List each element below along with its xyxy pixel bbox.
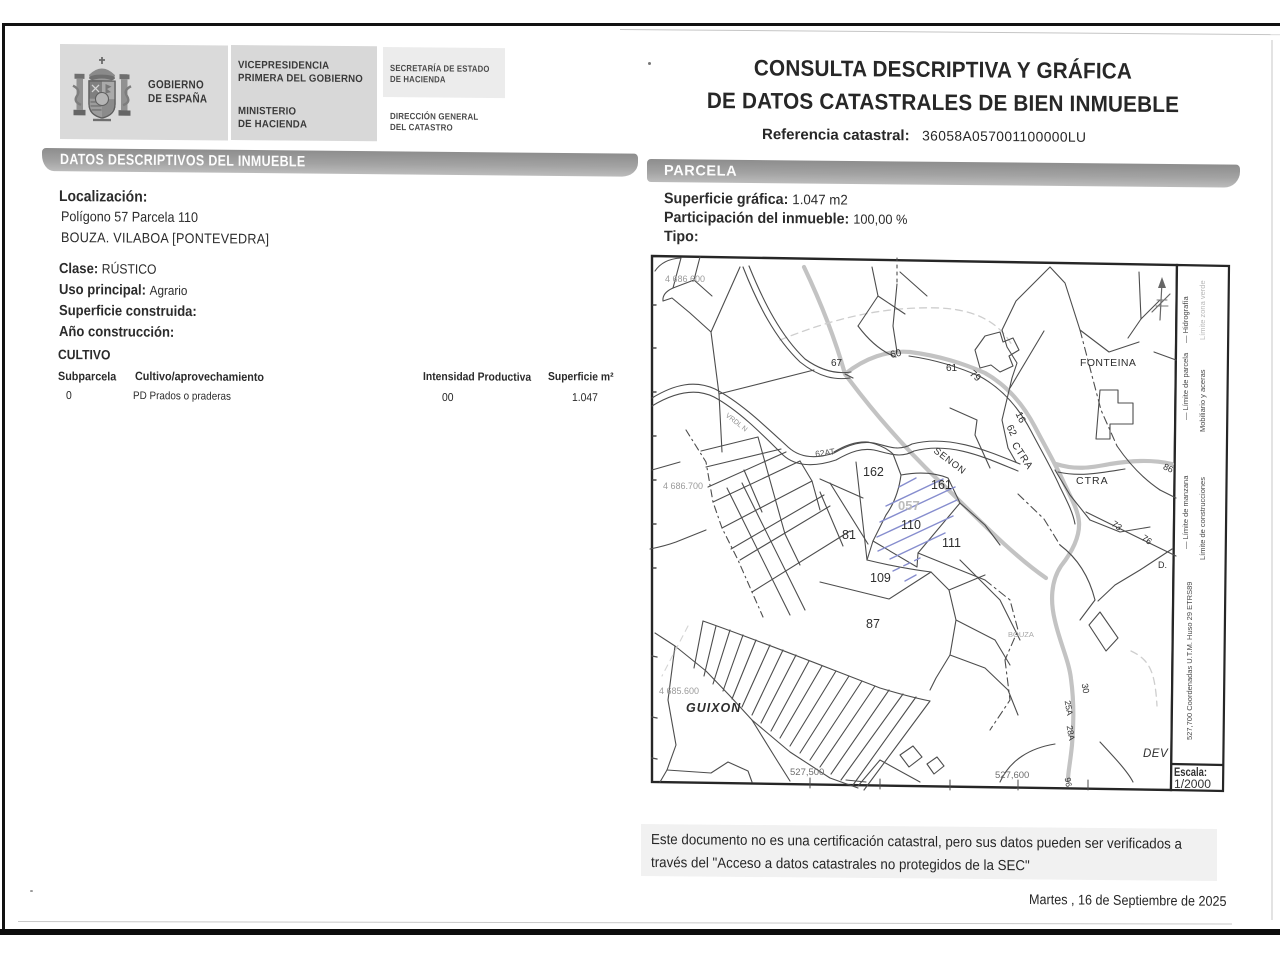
svg-text:161: 161 xyxy=(931,478,952,492)
svg-text:BOUZA: BOUZA xyxy=(1008,630,1034,639)
svg-text:4 686 600: 4 686 600 xyxy=(665,274,705,284)
svg-text:DEV: DEV xyxy=(1143,748,1169,760)
svg-text:Límite de construcciones: Límite de construcciones xyxy=(1198,477,1207,560)
svg-text:109: 109 xyxy=(870,571,891,585)
svg-text:30: 30 xyxy=(1080,683,1092,695)
svg-text:527,700 Coordenadas U.T.M. Hus: 527,700 Coordenadas U.T.M. Huso 29 ETRS8… xyxy=(1185,582,1194,740)
svg-text:Escala:: Escala: xyxy=(1174,767,1207,779)
svg-text:1/2000: 1/2000 xyxy=(1174,779,1211,791)
svg-text:— Límite de parcela: — Límite de parcela xyxy=(1181,352,1190,420)
svg-text:110: 110 xyxy=(901,518,921,532)
svg-text:67: 67 xyxy=(831,358,843,369)
svg-text:D.: D. xyxy=(1158,560,1167,570)
svg-text:527,500: 527,500 xyxy=(790,767,824,778)
svg-text:— Límite de manzana: — Límite de manzana xyxy=(1181,475,1190,549)
svg-text:057: 057 xyxy=(898,498,920,513)
svg-text:CTRA: CTRA xyxy=(1076,475,1109,487)
svg-text:Mobiliario y aceras: Mobiliario y aceras xyxy=(1198,369,1207,432)
svg-text:81: 81 xyxy=(842,528,856,542)
svg-text:162: 162 xyxy=(863,465,884,479)
svg-text:FONTEINA: FONTEINA xyxy=(1080,357,1136,369)
svg-text:— Hidrografía: — Hidrografía xyxy=(1181,295,1190,343)
svg-text:111: 111 xyxy=(942,536,961,550)
svg-text:527,600: 527,600 xyxy=(995,770,1029,781)
svg-text:GUIXON: GUIXON xyxy=(686,701,741,715)
svg-text:87: 87 xyxy=(866,617,880,631)
svg-text:61: 61 xyxy=(946,363,958,374)
svg-text:96: 96 xyxy=(1063,777,1075,788)
svg-text:4 685.600: 4 685.600 xyxy=(659,686,699,696)
svg-text:4 686.700: 4 686.700 xyxy=(663,481,703,491)
svg-text:Límite zona verde: Límite zona verde xyxy=(1198,280,1207,340)
